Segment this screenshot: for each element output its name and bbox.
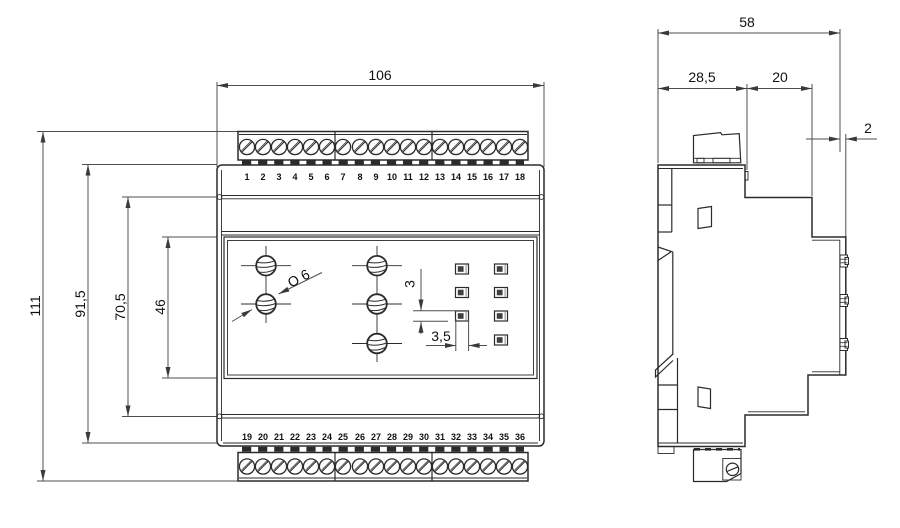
terminal-number: 12 [419, 172, 429, 182]
terminal-number: 13 [435, 172, 445, 182]
terminal-number: 21 [274, 432, 284, 442]
bottom-terminal-block [238, 449, 528, 481]
terminal-number: 22 [290, 432, 300, 442]
terminal-number: 30 [419, 432, 429, 442]
terminal-number: 5 [308, 172, 313, 182]
dim-led-height: 3 [402, 280, 418, 288]
potentiometer [367, 334, 387, 354]
terminal-number: 17 [499, 172, 509, 182]
terminal-number: 36 [515, 432, 525, 442]
terminal-number: 24 [322, 432, 332, 442]
led [456, 264, 469, 274]
terminal-number: 31 [435, 432, 445, 442]
terminal-number: 34 [483, 432, 493, 442]
terminal-number: 23 [306, 432, 316, 442]
terminal-number: 4 [292, 172, 297, 182]
terminal-number: 25 [338, 432, 348, 442]
dim-height-91-5: 91,5 [72, 290, 88, 317]
dim-lip-2: 2 [864, 120, 872, 136]
side-screw [840, 295, 849, 307]
dim-height-111: 111 [27, 295, 43, 316]
side-screw [840, 255, 849, 267]
terminal-number: 14 [451, 172, 461, 182]
terminal-number: 27 [371, 432, 381, 442]
side-bottom-clamp [694, 449, 742, 481]
terminal-number: 29 [403, 432, 413, 442]
led [456, 311, 469, 321]
side-screw [840, 339, 849, 351]
dim-depth-28-5: 28,5 [688, 69, 715, 85]
side-housing [656, 165, 846, 454]
terminal-number: 35 [499, 432, 509, 442]
dim-height-70-5: 70,5 [112, 293, 128, 320]
dim-width-106: 106 [368, 67, 392, 83]
side-top-clamp [694, 133, 741, 163]
led [495, 264, 508, 274]
dimension-drawing: 106 111 91,5 70,5 46 [0, 0, 900, 528]
potentiometer [367, 294, 387, 314]
led [495, 311, 508, 321]
terminal-number: 11 [403, 172, 413, 182]
dim-height-46: 46 [152, 299, 168, 315]
potentiometer [367, 256, 387, 276]
technical-drawing-page: 106 111 91,5 70,5 46 [0, 0, 900, 528]
led [456, 288, 469, 298]
dim-led-width: 3,5 [431, 328, 451, 344]
terminal-number: 28 [387, 432, 397, 442]
terminal-number: 2 [260, 172, 265, 182]
potentiometer [256, 294, 276, 314]
terminal-number: 18 [515, 172, 525, 182]
terminal-number: 20 [258, 432, 268, 442]
terminal-number: 1 [244, 172, 249, 182]
led [495, 335, 508, 345]
dim-depth-58: 58 [739, 14, 755, 30]
dim-depth-20: 20 [772, 69, 788, 85]
terminal-number: 33 [467, 432, 477, 442]
side-dimension-lines [658, 33, 877, 139]
top-terminal-block [238, 132, 528, 163]
terminal-number: 19 [242, 432, 252, 442]
potentiometer [256, 256, 276, 276]
terminal-number: 32 [451, 432, 461, 442]
terminal-number: 6 [324, 172, 329, 182]
led [495, 288, 508, 298]
terminal-number: 10 [387, 172, 397, 182]
terminal-number: 9 [373, 172, 378, 182]
terminal-number: 3 [276, 172, 281, 182]
terminal-number: 16 [483, 172, 493, 182]
terminal-number: 26 [355, 432, 365, 442]
front-view: 106 111 91,5 70,5 46 [27, 67, 544, 481]
terminal-number: 15 [467, 172, 477, 182]
terminal-number: 7 [340, 172, 345, 182]
side-view: 58 28,5 20 2 [656, 14, 878, 482]
terminal-number: 8 [357, 172, 362, 182]
